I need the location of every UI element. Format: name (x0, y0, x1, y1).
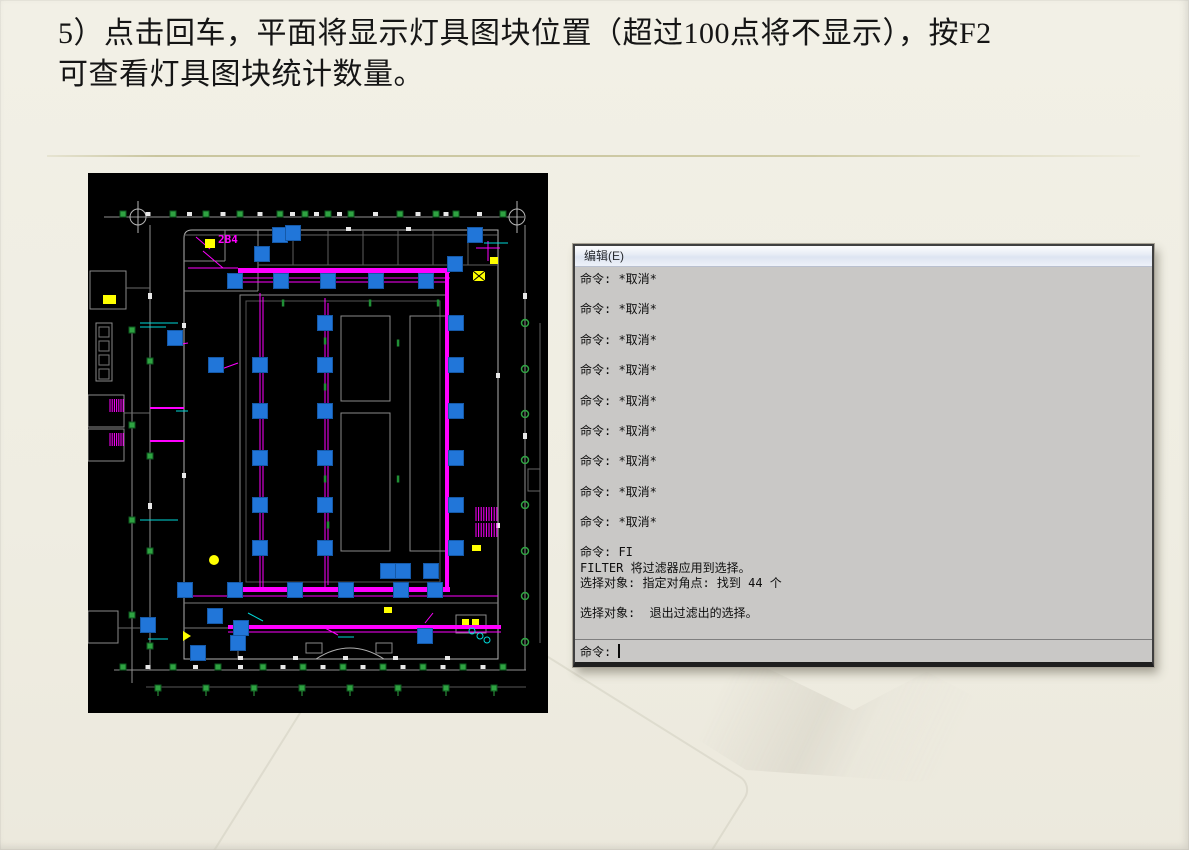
command-line: 选择对象: 指定对角点: 找到 44 个 (580, 576, 1152, 591)
command-line: 命令: *取消* (580, 424, 1152, 439)
command-line (580, 530, 1152, 545)
text-window-titlebar[interactable]: 编辑(E) (575, 246, 1152, 267)
command-line (580, 439, 1152, 454)
command-line: FILTER 将过滤器应用到选择。 (580, 561, 1152, 576)
command-line (580, 409, 1152, 424)
command-prompt: 命令: (580, 643, 611, 660)
title-line-2: 可查看灯具图块统计数量。 (58, 54, 1148, 95)
menu-edit[interactable]: 编辑(E) (584, 249, 624, 263)
command-line (580, 469, 1152, 484)
text-window: 编辑(E) 命令: *取消* 命令: *取消* 命令: *取消* 命令: *取消… (573, 244, 1154, 667)
watermark-map (660, 662, 1090, 782)
text-cursor (618, 644, 620, 658)
command-line (580, 378, 1152, 393)
command-line: 命令: *取消* (580, 363, 1152, 378)
command-line: 命令: *取消* (580, 485, 1152, 500)
cad-drawing[interactable]: 2B4 (88, 173, 548, 713)
command-line (580, 500, 1152, 515)
divider-line (47, 155, 1140, 157)
command-line: 命令: *取消* (580, 302, 1152, 317)
command-line: 命令: *取消* (580, 333, 1152, 348)
command-line (580, 591, 1152, 606)
command-history[interactable]: 命令: *取消* 命令: *取消* 命令: *取消* 命令: *取消* 命令: … (575, 267, 1152, 639)
command-input-row[interactable]: 命令: (575, 639, 1152, 662)
slide: 5）点击回车，平面将显示灯具图块位置（超过100点将不显示），按F2 可查看灯具… (0, 0, 1189, 850)
command-line: 命令: *取消* (580, 454, 1152, 469)
command-line: 选择对象: 退出过滤出的选择。 (580, 606, 1152, 621)
cad-circuit-label: 2B4 (218, 233, 238, 246)
command-line: 命令: *取消* (580, 272, 1152, 287)
command-line: 命令: FI (580, 545, 1152, 560)
title-line-1: 5）点击回车，平面将显示灯具图块位置（超过100点将不显示），按F2 (58, 13, 1148, 54)
command-line (580, 318, 1152, 333)
command-line (580, 348, 1152, 363)
command-line (580, 287, 1152, 302)
command-line: 命令: *取消* (580, 394, 1152, 409)
page-title: 5）点击回车，平面将显示灯具图块位置（超过100点将不显示），按F2 可查看灯具… (58, 13, 1148, 95)
command-line: 命令: *取消* (580, 515, 1152, 530)
